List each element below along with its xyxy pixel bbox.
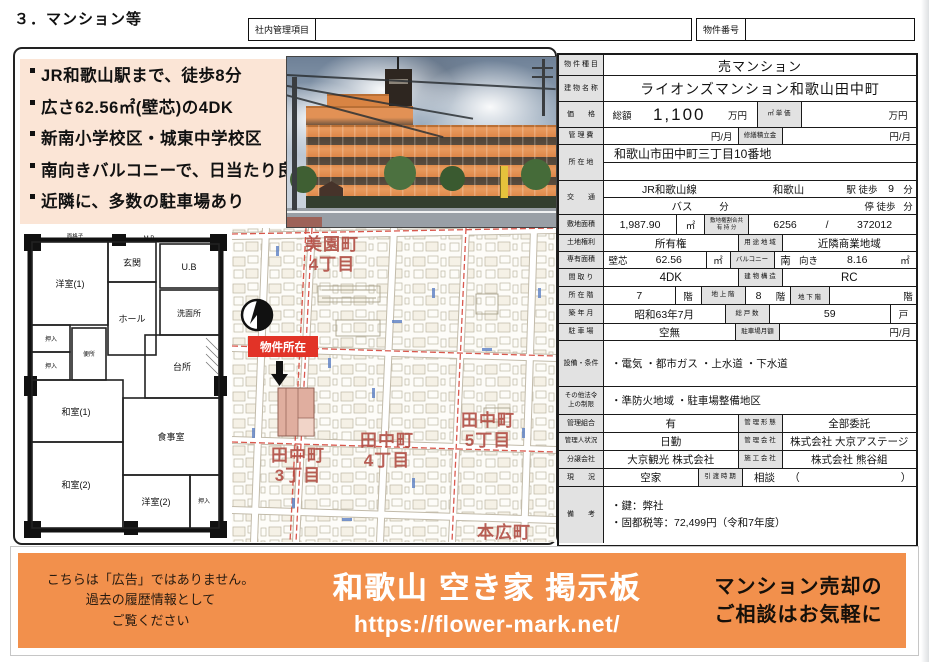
internal-management-box: 社内管理項目 <box>248 18 692 41</box>
district-label: 田中町 <box>461 410 515 430</box>
highlights-box: JR和歌山駅まで、徒歩8分 広さ62.56㎡(壁芯)の4DK 新南小学校区・城東… <box>20 59 288 224</box>
district-label: 本広町 <box>477 522 531 542</box>
utility-pole <box>292 77 296 210</box>
row-property-type: 物 件 種 目 売マンション <box>559 55 916 76</box>
footer-banner: こちらは「広告」ではありません。 過去の履歴情報として ご覧ください 和歌山 空… <box>18 553 906 648</box>
bullet-square-icon <box>30 100 35 105</box>
restrictions-value: ・準防火地域 ・駐車場整備地区 <box>604 387 916 414</box>
association-value: 有 <box>604 415 738 432</box>
property-number-box: 物件番号 <box>696 18 915 41</box>
zoning-value: 近隣商業地域 <box>783 235 917 251</box>
walk-minutes: 9 <box>882 183 900 195</box>
north-compass-icon <box>242 300 272 330</box>
row-price: 価 格 総額 1,100 万円 ㎡ 単 価 万円 <box>559 102 916 128</box>
district-label: 田中町 <box>271 445 325 465</box>
price-value: 1,100 <box>640 102 719 127</box>
room-label: 洋室(1) <box>56 278 85 289</box>
row-address: 所 在 地 和歌山市田中町三丁目10番地 <box>559 145 916 181</box>
subject-property-footprint <box>278 388 314 436</box>
row-remarks: 備 考 ・鍵：弊社 ・固都税等：72,499円（令和7年度） <box>559 487 916 543</box>
room-label: 台所 <box>173 361 191 372</box>
room-label: 洋室(2) <box>142 496 171 507</box>
exclusive-area-value: 62.56 <box>632 252 706 268</box>
bullet-square-icon <box>30 131 35 136</box>
row-association: 管理組合 有 管 理 形 態 全部委託 <box>559 415 916 433</box>
row-facilities: 設備・条件 ・電気 ・都市ガス ・上水道 ・下水道 <box>559 341 916 387</box>
row-built: 築 年 月 昭和63年7月 総 戸 数 59 戸 <box>559 305 916 324</box>
row-status: 現 況 空家 引 渡 時 期 相談 （ ） <box>559 469 916 487</box>
total-units-value: 59 <box>770 305 891 323</box>
developer-value: 大京観光 株式会社 <box>604 451 738 468</box>
internal-management-field <box>316 19 691 40</box>
mgmt-form-value: 全部委託 <box>783 415 917 432</box>
highlight-item: 近隣に、多数の駐車場あり <box>30 194 288 211</box>
room-label: ホール <box>118 314 145 324</box>
property-type-value: 売マンション <box>604 55 916 75</box>
remarks-value: ・鍵：弊社 ・固都税等：72,499円（令和7年度） <box>604 487 916 543</box>
row-layout: 間 取 り 4DK 建 物 構 造 RC <box>559 269 916 287</box>
district-label: 美園町 <box>305 234 359 254</box>
row-manager: 管理人状況 日勤 管 理 会 社 株式会社 大京アステージ <box>559 433 916 451</box>
property-table: 物 件 種 目 売マンション 建 物 名 称 ライオンズマンション和歌山田中町 … <box>557 53 918 547</box>
yellow-banner-flag <box>500 166 509 198</box>
manager-value: 日勤 <box>604 433 738 450</box>
closet-label: 押入 <box>198 497 210 505</box>
highlight-item: 新南小学校区・城東中学校区 <box>30 131 288 148</box>
row-developer: 分譲会社 大京観光 株式会社 施 工 会 社 株式会社 熊谷組 <box>559 451 916 469</box>
built-date-value: 昭和63年7月 <box>604 305 725 323</box>
flyer-page: ３．マンション等 社内管理項目 物件番号 JR和歌山駅まで、徒歩8分 広さ62.… <box>0 0 929 662</box>
row-restrictions: その他法令 上の制限 ・準防火地域 ・駐車場整備地区 <box>559 387 916 415</box>
banner-url[interactable]: https://flower-mark.net/ <box>283 611 691 638</box>
rail-line: JR和歌山線 <box>604 182 735 197</box>
property-overview-panel: JR和歌山駅まで、徒歩8分 広さ62.56㎡(壁芯)の4DK 新南小学校区・城東… <box>13 47 557 545</box>
row-mgmt-fee: 管 理 費 円/月 修繕積立金 円/月 <box>559 128 916 145</box>
room-label: 玄関 <box>123 257 141 268</box>
closet-label: 押入 <box>45 335 57 343</box>
room-label: 食事室 <box>157 431 184 442</box>
district-label: 4丁目 <box>309 255 355 274</box>
structure-value: RC <box>783 269 917 286</box>
share-numerator: 6256 <box>749 215 821 234</box>
room-label: 洗面所 <box>177 308 201 318</box>
row-land-right: 土地権利 所有権 用 途 地 域 近隣商業地域 <box>559 235 916 252</box>
meter-box-label: M.B <box>144 236 155 242</box>
property-number-label: 物件番号 <box>697 19 746 40</box>
address-value: 和歌山市田中町三丁目10番地 <box>604 145 916 163</box>
row-exclusive-area: 専有面積 壁芯 62.56 ㎡ バルコニー 南 向き 8.16 ㎡ <box>559 252 916 269</box>
balcony-area-value: 8.16 <box>821 252 895 268</box>
banner-title: 和歌山 空き家 掲示板 <box>283 563 691 607</box>
banner-cta: マンション売却の ご相談はお気軽に <box>691 573 906 629</box>
floors-above-value: 8 <box>746 287 772 304</box>
row-access: 交 通 JR和歌山線 和歌山 駅 徒歩 9 分 バス 分 停 徒歩 分 <box>559 181 916 215</box>
highlight-item: 広さ62.56㎡(壁芯)の4DK <box>30 100 288 117</box>
floorplan-caption: 面格子 <box>67 232 84 240</box>
row-parking: 駐 車 場 空無 駐車場月額 円/月 <box>559 324 916 341</box>
land-area-value: 1,987.90 <box>604 215 676 234</box>
mgmt-company-value: 株式会社 大京アステージ <box>783 433 917 450</box>
footer-banner-frame: こちらは「広告」ではありません。 過去の履歴情報として ご覧ください 和歌山 空… <box>10 546 919 656</box>
highlight-item: 南向きバルコニーで、日当たり良好 <box>30 163 288 180</box>
svg-text:物件所在: 物件所在 <box>260 340 306 354</box>
facilities-value: ・電気 ・都市ガス ・上水道 ・下水道 <box>604 341 916 386</box>
room-label: 和室(2) <box>62 479 91 490</box>
floor-value: 7 <box>604 287 675 304</box>
status-value: 空家 <box>604 469 698 486</box>
parking-value: 空無 <box>604 324 735 340</box>
bullet-square-icon <box>30 194 35 199</box>
district-label: 田中町 <box>360 430 414 450</box>
district-label: 3丁目 <box>275 466 321 485</box>
share-denominator: 372012 <box>833 215 916 234</box>
row-building-name: 建 物 名 称 ライオンズマンション和歌山田中町 <box>559 76 916 102</box>
bullet-square-icon <box>30 163 35 168</box>
page-title: ３．マンション等 <box>14 8 142 29</box>
building-photo <box>287 57 556 227</box>
highlight-item: JR和歌山駅まで、徒歩8分 <box>30 68 288 85</box>
row-land-area: 敷地面積 1,987.90 ㎡ 敷地権割合共 有 持 分 6256 / 3720… <box>559 215 916 235</box>
district-label: 4丁目 <box>364 451 410 470</box>
bullet-square-icon <box>30 68 35 73</box>
floors-below-value <box>830 287 901 304</box>
closet-label: 押入 <box>45 362 57 370</box>
building-name-value: ライオンズマンション和歌山田中町 <box>604 76 916 101</box>
station-name: 和歌山 <box>735 182 842 197</box>
property-number-field <box>746 19 914 40</box>
builder-value: 株式会社 熊谷組 <box>783 451 917 468</box>
layout-value: 4DK <box>604 269 738 286</box>
district-label: 5丁目 <box>465 431 511 450</box>
sqm-price-value <box>802 102 881 127</box>
handover-value: 相談 <box>743 469 787 486</box>
internal-management-label: 社内管理項目 <box>249 19 316 40</box>
banner-disclaimer: こちらは「広告」ではありません。 過去の履歴情報として ご覧ください <box>18 570 283 630</box>
location-map: 物件所在 美園町 4丁目 田中町 4丁目 田中町 5丁目 田中町 3丁目 本広町 <box>232 228 556 542</box>
land-right-value: 所有権 <box>604 235 738 251</box>
room-label: 和室(1) <box>62 406 91 417</box>
toilet-label: 便所 <box>83 350 95 358</box>
room-label: U.B <box>181 262 196 272</box>
row-floor: 所 在 階 7 階 地 上 階 8 階 地 下 階 階 <box>559 287 916 305</box>
floorplan: 洋室(1) 玄関 U.B ホール 洗面所 台所 和室(1) 食事室 和室(2) … <box>20 230 231 542</box>
